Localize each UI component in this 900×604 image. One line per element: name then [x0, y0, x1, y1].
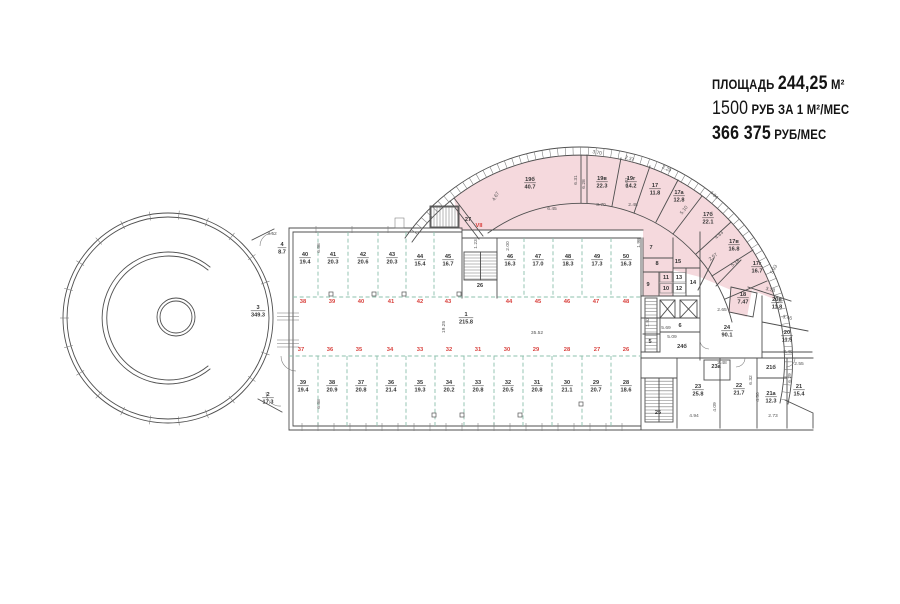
svg-text:20: 20 [784, 330, 790, 336]
svg-text:37: 37 [358, 380, 364, 386]
axis-number: 29 [533, 347, 540, 353]
room-label: 4120.3 [327, 252, 339, 266]
svg-text:11.5: 11.5 [782, 338, 793, 344]
svg-text:32: 32 [505, 380, 511, 386]
svg-text:24: 24 [724, 325, 731, 331]
highlight-layer [454, 155, 776, 317]
dimension-label: 4.84 [708, 190, 719, 201]
svg-text:14: 14 [690, 280, 697, 286]
svg-text:15.4: 15.4 [794, 392, 806, 398]
svg-text:19б: 19б [525, 176, 535, 183]
room-label: 3349.3 [251, 305, 266, 319]
price-line: 366 375 РУБ/МЕС [712, 122, 849, 147]
room-label: 19в22.3 [596, 176, 608, 190]
svg-text:17г: 17г [753, 261, 762, 267]
axis-number: 30 [504, 347, 510, 353]
svg-text:7.47: 7.47 [738, 300, 749, 306]
svg-text:30: 30 [564, 380, 570, 386]
svg-text:28: 28 [623, 380, 629, 386]
svg-text:39: 39 [300, 380, 306, 386]
dimension-label: 1.98 [636, 238, 642, 248]
svg-text:215.8: 215.8 [459, 320, 473, 326]
svg-text:3: 3 [256, 305, 259, 311]
rotunda [63, 213, 282, 423]
svg-text:17.0: 17.0 [533, 262, 544, 268]
room-label: 3021.1 [561, 380, 573, 394]
dimension-label: 2.00 [505, 241, 511, 251]
svg-text:20.9: 20.9 [327, 388, 338, 394]
room-label: 4516.7 [442, 254, 454, 268]
dimension-label: 3.40 [783, 349, 793, 355]
svg-text:21.1: 21.1 [562, 388, 573, 394]
selected-area-highlight[interactable] [454, 155, 776, 317]
room-label: 3919.4 [297, 380, 309, 394]
svg-text:49: 49 [594, 254, 600, 260]
svg-text:20.8: 20.8 [532, 388, 543, 394]
room-label: 4019.4 [299, 252, 311, 266]
room-label: 3120.8 [531, 380, 543, 394]
room-label: 3420.2 [443, 380, 455, 394]
svg-text:4: 4 [280, 242, 284, 248]
axis-number: 37 [298, 347, 304, 353]
area-unit: М² [831, 77, 845, 92]
room-label: 12 [676, 286, 682, 292]
dimension-label: 6.88 [316, 243, 322, 253]
svg-text:12: 12 [676, 286, 682, 292]
svg-text:10: 10 [663, 286, 669, 292]
axis-number: 27 [594, 347, 600, 353]
svg-text:44: 44 [417, 254, 424, 260]
svg-text:46: 46 [507, 254, 513, 260]
svg-text:8.7: 8.7 [278, 250, 286, 256]
axis-number: VII [475, 223, 482, 229]
room-label: 3720.8 [355, 380, 367, 394]
axis-number: 28 [564, 347, 571, 353]
svg-text:40: 40 [302, 252, 308, 258]
svg-text:20.3: 20.3 [387, 260, 398, 266]
room-label: 17г16.7 [751, 261, 763, 275]
svg-text:20.3: 20.3 [328, 260, 339, 266]
dimension-label: 5.09 [667, 334, 677, 340]
svg-text:17.3: 17.3 [263, 400, 274, 406]
dimension-label: 1.83 [645, 317, 651, 327]
room-label: 3820.9 [326, 380, 338, 394]
svg-text:18.6: 18.6 [621, 388, 632, 394]
room-label: 2490.1 [721, 325, 733, 339]
axis-number: 42 [417, 299, 423, 305]
svg-text:11.8: 11.8 [772, 305, 783, 311]
svg-text:36: 36 [388, 380, 394, 386]
door-marker [457, 292, 461, 296]
svg-text:43: 43 [389, 252, 395, 258]
svg-text:26: 26 [477, 283, 483, 289]
room-label: 4818.3 [562, 254, 574, 268]
svg-text:19в: 19в [597, 176, 607, 182]
axis-number: 33 [417, 347, 424, 353]
svg-text:12.8: 12.8 [674, 198, 685, 204]
area-value: 244,25 [778, 73, 828, 94]
svg-text:48: 48 [565, 254, 571, 260]
room-label: 1215.8 [459, 312, 474, 326]
room-label: 11 [663, 275, 669, 281]
svg-text:29: 29 [593, 380, 599, 386]
svg-text:41: 41 [330, 252, 336, 258]
svg-text:25: 25 [655, 410, 661, 416]
axis-number: 39 [329, 299, 336, 305]
dimension-label: 6.01 [624, 177, 630, 187]
svg-text:47: 47 [535, 254, 541, 260]
svg-text:12.3: 12.3 [766, 399, 777, 405]
axis-number: 35 [356, 347, 363, 353]
svg-text:24б: 24б [677, 343, 687, 350]
axis-number: 31 [475, 347, 482, 353]
door-marker [579, 402, 583, 406]
svg-text:20.2: 20.2 [444, 388, 455, 394]
svg-text:31: 31 [534, 380, 540, 386]
room-label: 14 [690, 280, 697, 286]
svg-text:7: 7 [649, 245, 652, 251]
dimension-label: 6.29 [787, 373, 793, 383]
svg-text:90.1: 90.1 [722, 333, 733, 339]
rate-value: 1500 [712, 98, 748, 119]
room-label: 9 [646, 282, 649, 288]
svg-text:9: 9 [646, 282, 649, 288]
room-label: 25 [655, 410, 661, 416]
dimension-label: 4.94 [689, 413, 699, 419]
dimension-label: 35.52 [531, 330, 544, 336]
dimension-label: 6.31 [573, 175, 579, 185]
svg-text:45: 45 [445, 254, 451, 260]
svg-text:17: 17 [652, 183, 658, 189]
svg-text:15: 15 [675, 259, 681, 265]
svg-text:25.8: 25.8 [693, 392, 704, 398]
svg-text:50: 50 [623, 254, 629, 260]
svg-text:17а: 17а [674, 190, 684, 196]
axis-number: 41 [388, 299, 395, 305]
room-label: 5 [648, 339, 651, 345]
room-label: 3320.8 [472, 380, 484, 394]
room-label: 7 [649, 245, 652, 251]
axis-number: 32 [446, 347, 452, 353]
room-label: 4616.3 [504, 254, 516, 268]
door-marker [460, 413, 464, 417]
room-label: 4220.6 [357, 252, 369, 266]
room-label: 27 [465, 217, 471, 223]
room-label: 48.7 [278, 242, 287, 256]
svg-text:19.4: 19.4 [300, 260, 312, 266]
stair-27-box [430, 206, 459, 228]
axis-number: 38 [300, 299, 307, 305]
svg-text:11: 11 [663, 275, 669, 281]
room-label: 8 [655, 261, 658, 267]
dimension-label: 2.48 [717, 360, 727, 366]
room-label: 17в16.8 [728, 239, 740, 253]
room-label: 3220.5 [502, 380, 514, 394]
axis-number: 40 [358, 299, 364, 305]
dimension-label: 19.25 [441, 321, 447, 334]
room-label: 2818.6 [620, 380, 632, 394]
room-label: 17а12.8 [673, 190, 685, 204]
svg-text:38: 38 [329, 380, 335, 386]
svg-text:5: 5 [648, 339, 651, 345]
room-label: 20в11.8 [771, 297, 783, 311]
room-label: 24б [677, 343, 687, 350]
room-label: 21б [766, 364, 776, 371]
svg-text:2: 2 [266, 392, 269, 398]
svg-text:20.8: 20.8 [473, 388, 484, 394]
svg-text:20.8: 20.8 [356, 388, 367, 394]
dimension-label: 6.88 [316, 399, 322, 409]
svg-text:16.7: 16.7 [752, 269, 763, 275]
dimension-label: 6.28 [581, 179, 587, 189]
svg-text:22.3: 22.3 [597, 184, 608, 190]
door-marker [518, 413, 522, 417]
room-label: 2115.4 [793, 384, 805, 398]
svg-text:8: 8 [655, 261, 658, 267]
room-label: 5016.3 [620, 254, 632, 268]
axis-number: 44 [506, 299, 513, 305]
svg-text:21.4: 21.4 [386, 388, 398, 394]
dimension-label: 5.69 [661, 325, 671, 331]
axis-number: 47 [593, 299, 599, 305]
svg-text:1: 1 [464, 312, 467, 318]
door-marker [372, 292, 376, 296]
floorplan-page: 48.73349.3217.34019.44120.34220.64320.34… [0, 0, 900, 604]
room-label: 10 [663, 286, 669, 292]
room-label: 2325.8 [692, 384, 704, 398]
svg-text:13: 13 [676, 275, 682, 281]
room-label: 217.3 [262, 392, 274, 406]
room-label: 4320.3 [386, 252, 398, 266]
svg-text:23: 23 [695, 384, 701, 390]
room-label: 4415.4 [414, 254, 426, 268]
price-unit: РУБ/МЕС [774, 127, 826, 142]
svg-text:20.7: 20.7 [591, 388, 602, 394]
rate-unit: РУБ ЗА 1 М²/МЕС [752, 102, 850, 117]
door-marker [432, 413, 436, 417]
dimension-label: 2.73 [768, 413, 778, 419]
svg-text:11.8: 11.8 [650, 191, 661, 197]
svg-text:22.1: 22.1 [703, 220, 714, 226]
axis-number: 34 [387, 347, 394, 353]
price-value: 366 375 [712, 123, 771, 144]
axis-number: 26 [623, 347, 630, 353]
dimension-label: 2.48 [628, 202, 638, 208]
svg-text:22: 22 [736, 383, 742, 389]
svg-text:16.7: 16.7 [443, 262, 454, 268]
dimension-label: 2.55 [794, 361, 804, 367]
dimension-label: 4.09 [712, 402, 718, 412]
svg-text:27: 27 [465, 217, 471, 223]
svg-text:20.5: 20.5 [503, 388, 514, 394]
svg-text:21: 21 [796, 384, 802, 390]
axis-number: 48 [623, 299, 630, 305]
room-label: 3519.3 [414, 380, 426, 394]
svg-text:34: 34 [446, 380, 453, 386]
svg-text:21.7: 21.7 [734, 391, 745, 397]
dimension-label: 2.65 [717, 307, 727, 313]
svg-text:17в: 17в [729, 239, 739, 245]
svg-text:15.4: 15.4 [415, 262, 427, 268]
axis-number: 46 [564, 299, 571, 305]
axis-number: 45 [535, 299, 542, 305]
svg-text:16.8: 16.8 [729, 247, 740, 253]
room-label: 21а12.3 [765, 391, 777, 405]
axis-number: 43 [445, 299, 452, 305]
dimension-label: 4.50 [755, 392, 761, 402]
room-label: 4917.3 [591, 254, 603, 268]
area-label: ПЛОЩАДЬ [712, 77, 775, 92]
svg-text:42: 42 [360, 252, 366, 258]
svg-text:18.3: 18.3 [563, 262, 574, 268]
dimension-label: 3.52 [267, 231, 277, 237]
listing-info-panel: ПЛОЩАДЬ 244,25 М² 1500 РУБ ЗА 1 М²/МЕС 3… [712, 72, 849, 147]
dimension-label: 6.45 [547, 206, 557, 212]
room-label: 3621.4 [385, 380, 397, 394]
svg-text:33: 33 [475, 380, 481, 386]
svg-text:20в: 20в [772, 297, 782, 303]
svg-text:349.3: 349.3 [251, 313, 265, 319]
room-label: 2920.7 [590, 380, 602, 394]
svg-text:16.3: 16.3 [505, 262, 516, 268]
svg-text:19.3: 19.3 [415, 388, 426, 394]
door-marker [329, 292, 333, 296]
area-line: ПЛОЩАДЬ 244,25 М² [712, 72, 849, 97]
svg-text:17.3: 17.3 [592, 262, 603, 268]
svg-text:19.4: 19.4 [298, 388, 310, 394]
room-label: 4717.0 [532, 254, 544, 268]
room-label: 13 [676, 275, 682, 281]
dimension-label: 6.32 [748, 375, 754, 385]
room-label: 15 [675, 259, 681, 265]
dimension-label: 1.23 [473, 239, 479, 249]
svg-text:18: 18 [740, 292, 746, 298]
room-label: 6 [678, 323, 681, 329]
svg-text:20.6: 20.6 [358, 260, 369, 266]
axis-number: 36 [327, 347, 334, 353]
room-label: 26 [477, 283, 483, 289]
svg-text:16.3: 16.3 [621, 262, 632, 268]
svg-text:6: 6 [678, 323, 681, 329]
svg-text:40.7: 40.7 [525, 185, 536, 191]
dimension-label: 3.70 [596, 202, 606, 208]
svg-text:21б: 21б [766, 364, 776, 371]
svg-text:35: 35 [417, 380, 423, 386]
door-marker [402, 292, 406, 296]
svg-text:17б: 17б [703, 211, 713, 218]
svg-text:21а: 21а [766, 391, 776, 397]
room-label: 2221.7 [733, 383, 745, 397]
rate-line: 1500 РУБ ЗА 1 М²/МЕС [712, 97, 849, 122]
dimension-label: 3.46 [782, 314, 793, 322]
